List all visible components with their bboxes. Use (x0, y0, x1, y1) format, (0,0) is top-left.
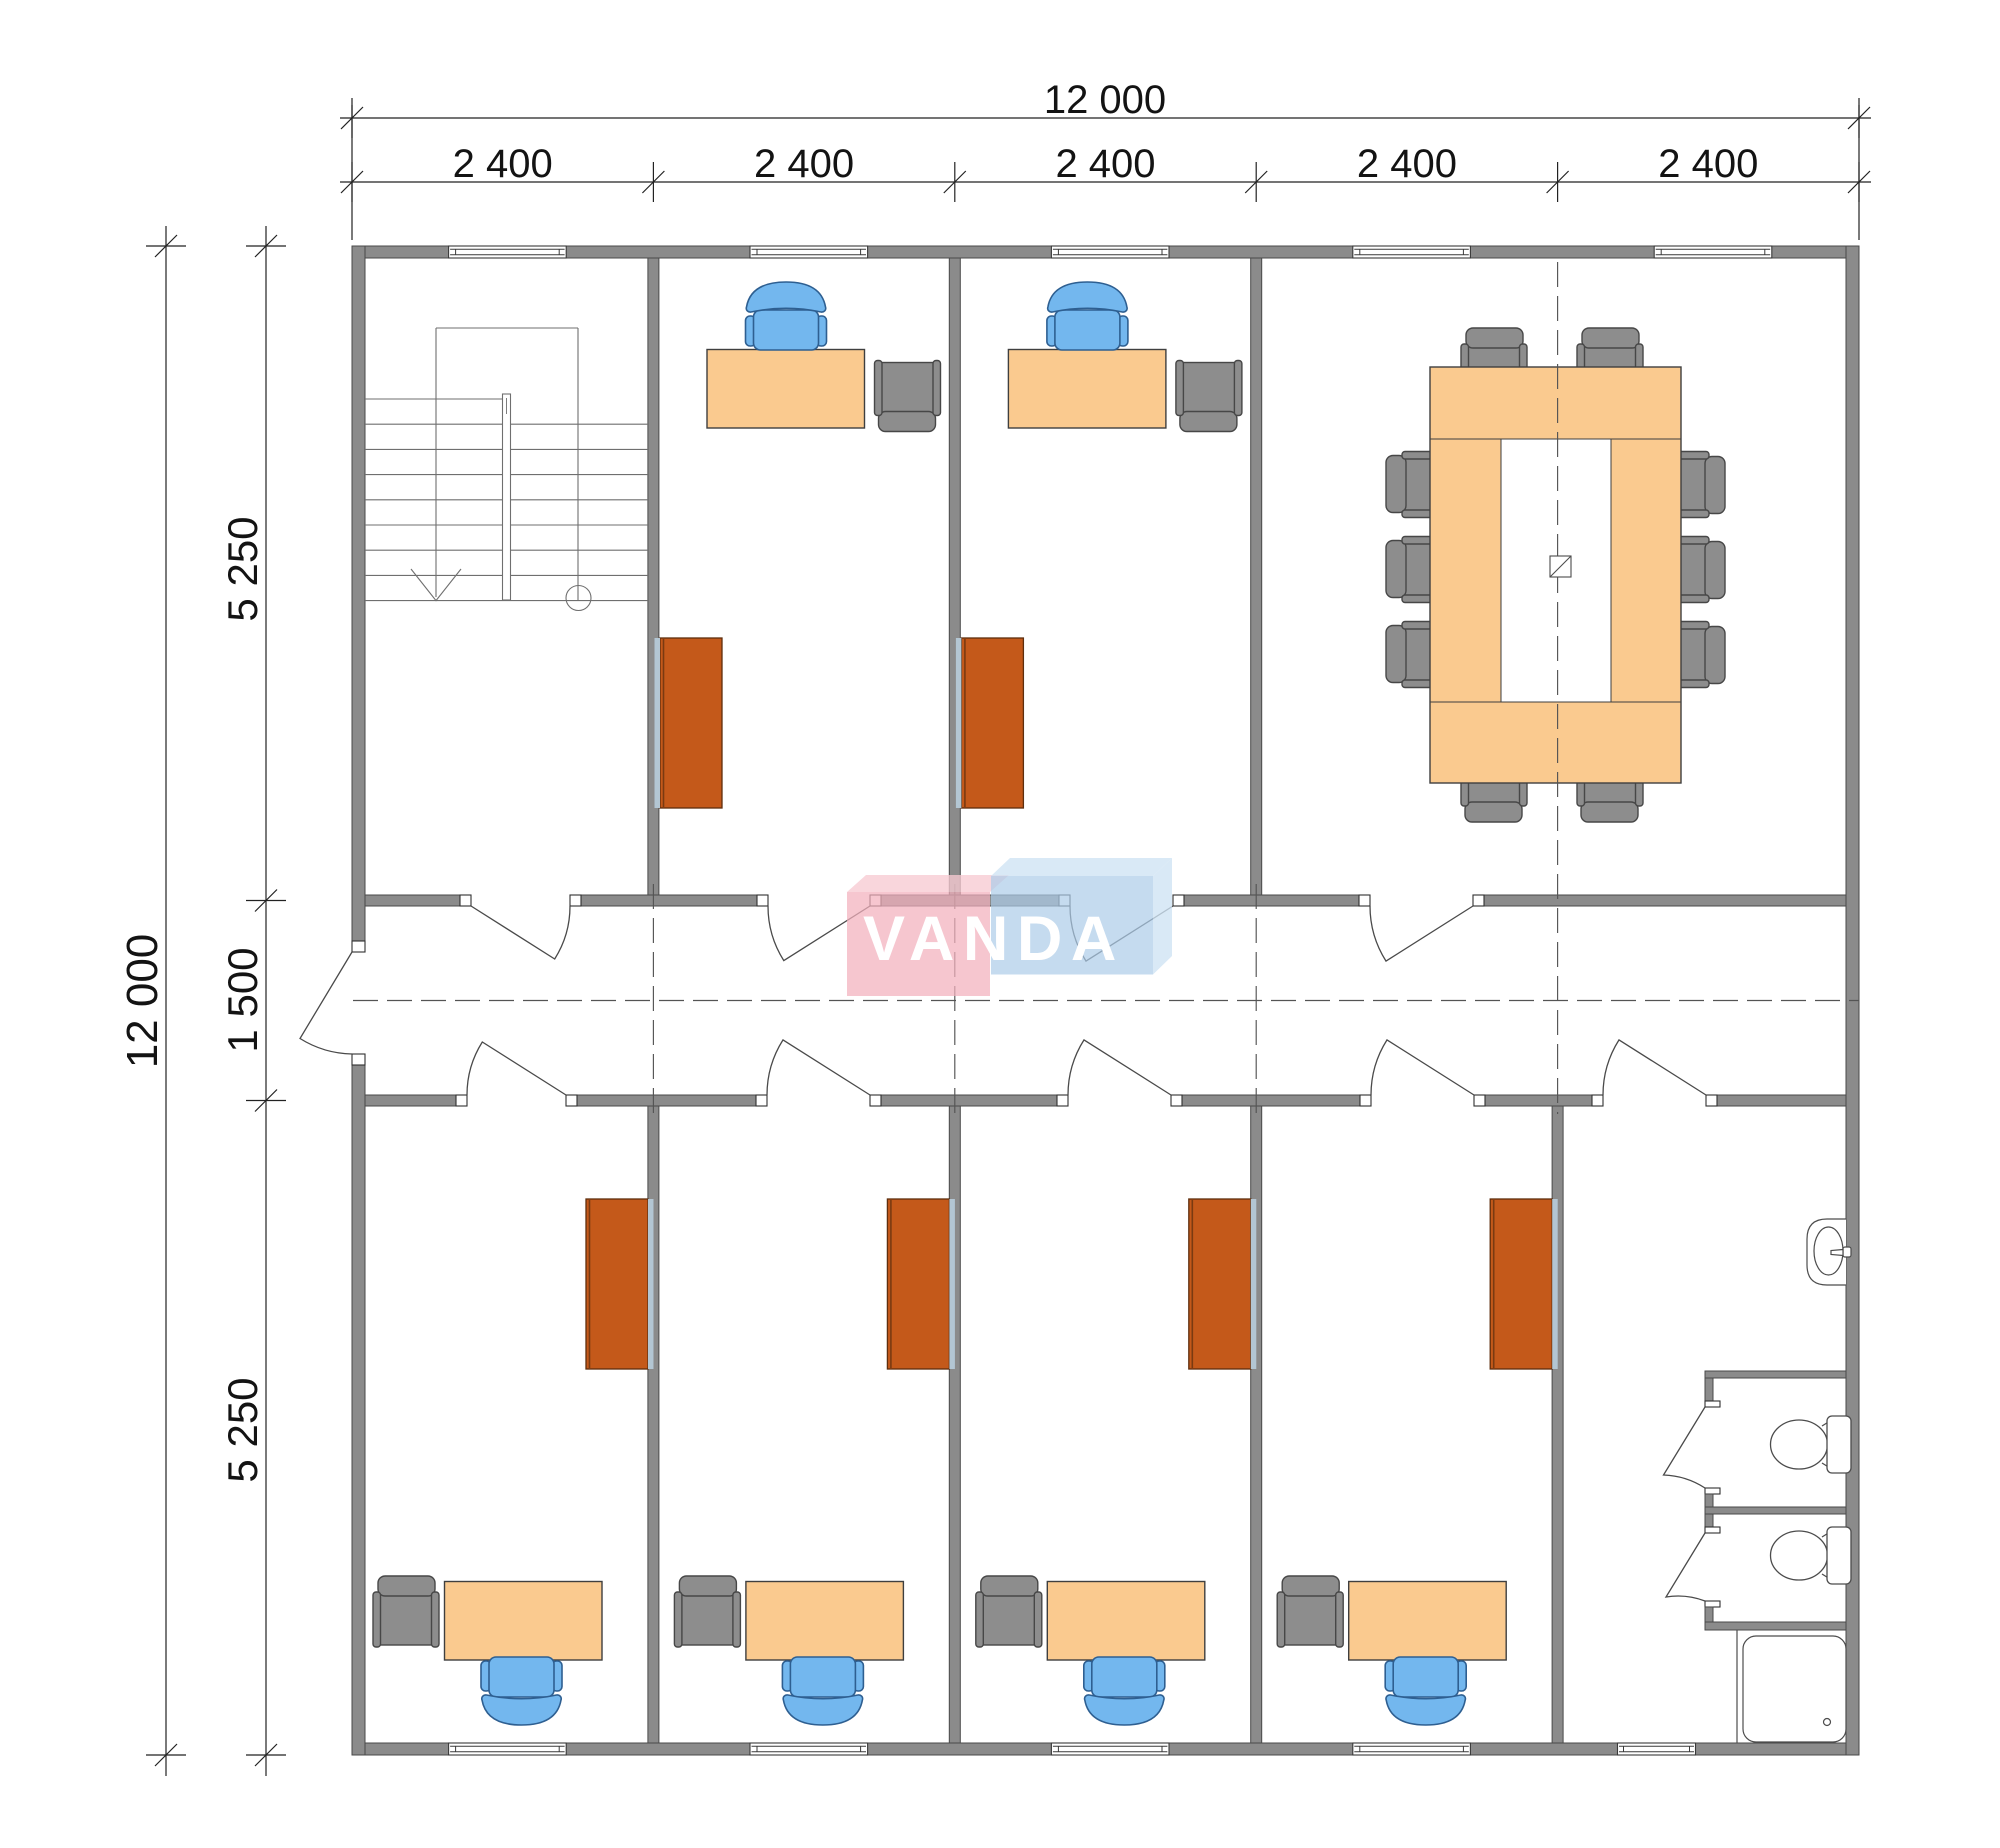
svg-text:12 000: 12 000 (1044, 78, 1166, 122)
svg-text:2 400: 2 400 (1055, 142, 1155, 186)
svg-text:12 000: 12 000 (118, 934, 167, 1069)
svg-text:2 400: 2 400 (754, 142, 854, 186)
svg-text:5 250: 5 250 (219, 1377, 266, 1482)
svg-text:2 400: 2 400 (1357, 142, 1457, 186)
svg-text:1 500: 1 500 (219, 947, 266, 1052)
svg-text:2 400: 2 400 (1658, 142, 1758, 186)
svg-text:VANDA: VANDA (863, 904, 1125, 974)
svg-text:5 250: 5 250 (219, 516, 266, 621)
svg-text:2 400: 2 400 (453, 142, 553, 186)
